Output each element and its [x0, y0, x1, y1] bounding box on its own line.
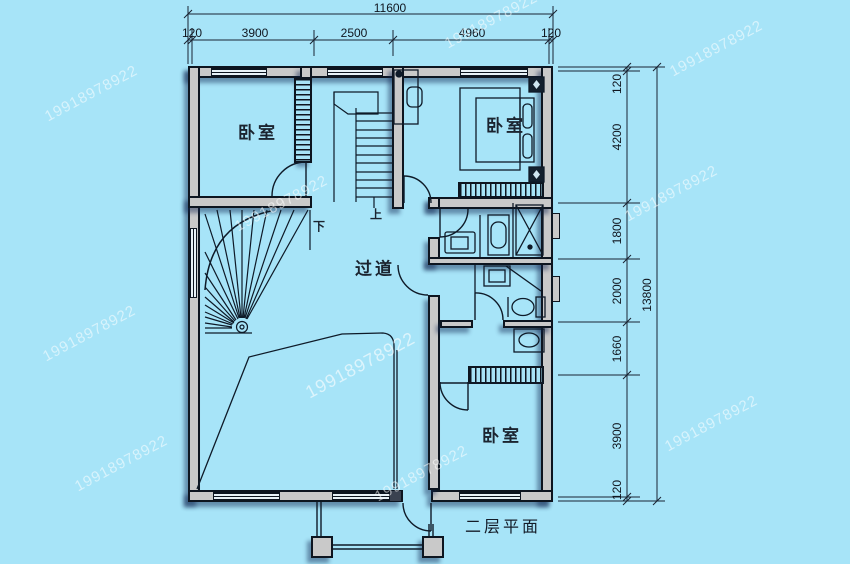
stair-straight [334, 92, 392, 208]
dim-right-seg: 120 [610, 54, 624, 114]
plan-title: 二层平面 [465, 513, 541, 537]
dim-top-seg: 4960 [442, 26, 502, 40]
bathroom1-fixtures [445, 203, 543, 257]
dim-right-seg: 1660 [610, 319, 624, 379]
void-boundary [197, 333, 397, 489]
door-arc-bedroom3 [440, 382, 468, 410]
pillow [523, 134, 532, 158]
dim-top-seg: 3900 [225, 26, 285, 40]
door-arc-bath1 [440, 209, 468, 237]
dim-top-seg: 120 [531, 26, 571, 40]
room-label-bedroom1: 卧室 [238, 119, 278, 144]
dim-right-seg: 4200 [610, 107, 624, 167]
door-arc-bedroom1 [272, 162, 306, 196]
door-arc-bath2-inner [475, 293, 503, 320]
dim-right-seg: 2000 [610, 261, 624, 321]
plan-linework [0, 0, 850, 564]
bathroom2-fixtures [475, 265, 545, 352]
dim-right-seg: 1800 [610, 201, 624, 261]
dim-right-seg: 120 [610, 460, 624, 520]
chair [407, 87, 422, 107]
sink-bath2 [484, 266, 510, 286]
door-arc-bedroom2 [404, 176, 431, 203]
lamp [396, 71, 402, 77]
door-arc-balcony [403, 503, 431, 531]
stair-curved [205, 210, 310, 333]
desk [394, 70, 418, 124]
dim-top-total: 11600 [355, 1, 425, 15]
room-label-bedroom2: 卧室 [486, 112, 526, 137]
room-label-hallway: 过道 [355, 255, 395, 280]
stair-down-label: 下 [313, 218, 325, 235]
dim-top-seg: 120 [172, 26, 212, 40]
stair-up-label: 上 [370, 206, 382, 223]
toilet-bath2-tank [536, 297, 545, 317]
dim-top-seg: 2500 [324, 26, 384, 40]
dim-right-seg: 3900 [610, 406, 624, 466]
dim-right-total: 13800 [640, 265, 654, 325]
door-arc-bath2 [398, 265, 428, 295]
toilet-bath2-bowl [512, 299, 534, 316]
balcony-railing [317, 502, 433, 549]
floor-plan-canvas: 卧室 卧室 卧室 过道 上 下 二层平面 11600 120 3900 2500… [0, 0, 850, 564]
dimension-lines [184, 6, 665, 505]
room-label-bedroom3: 卧室 [482, 422, 522, 447]
